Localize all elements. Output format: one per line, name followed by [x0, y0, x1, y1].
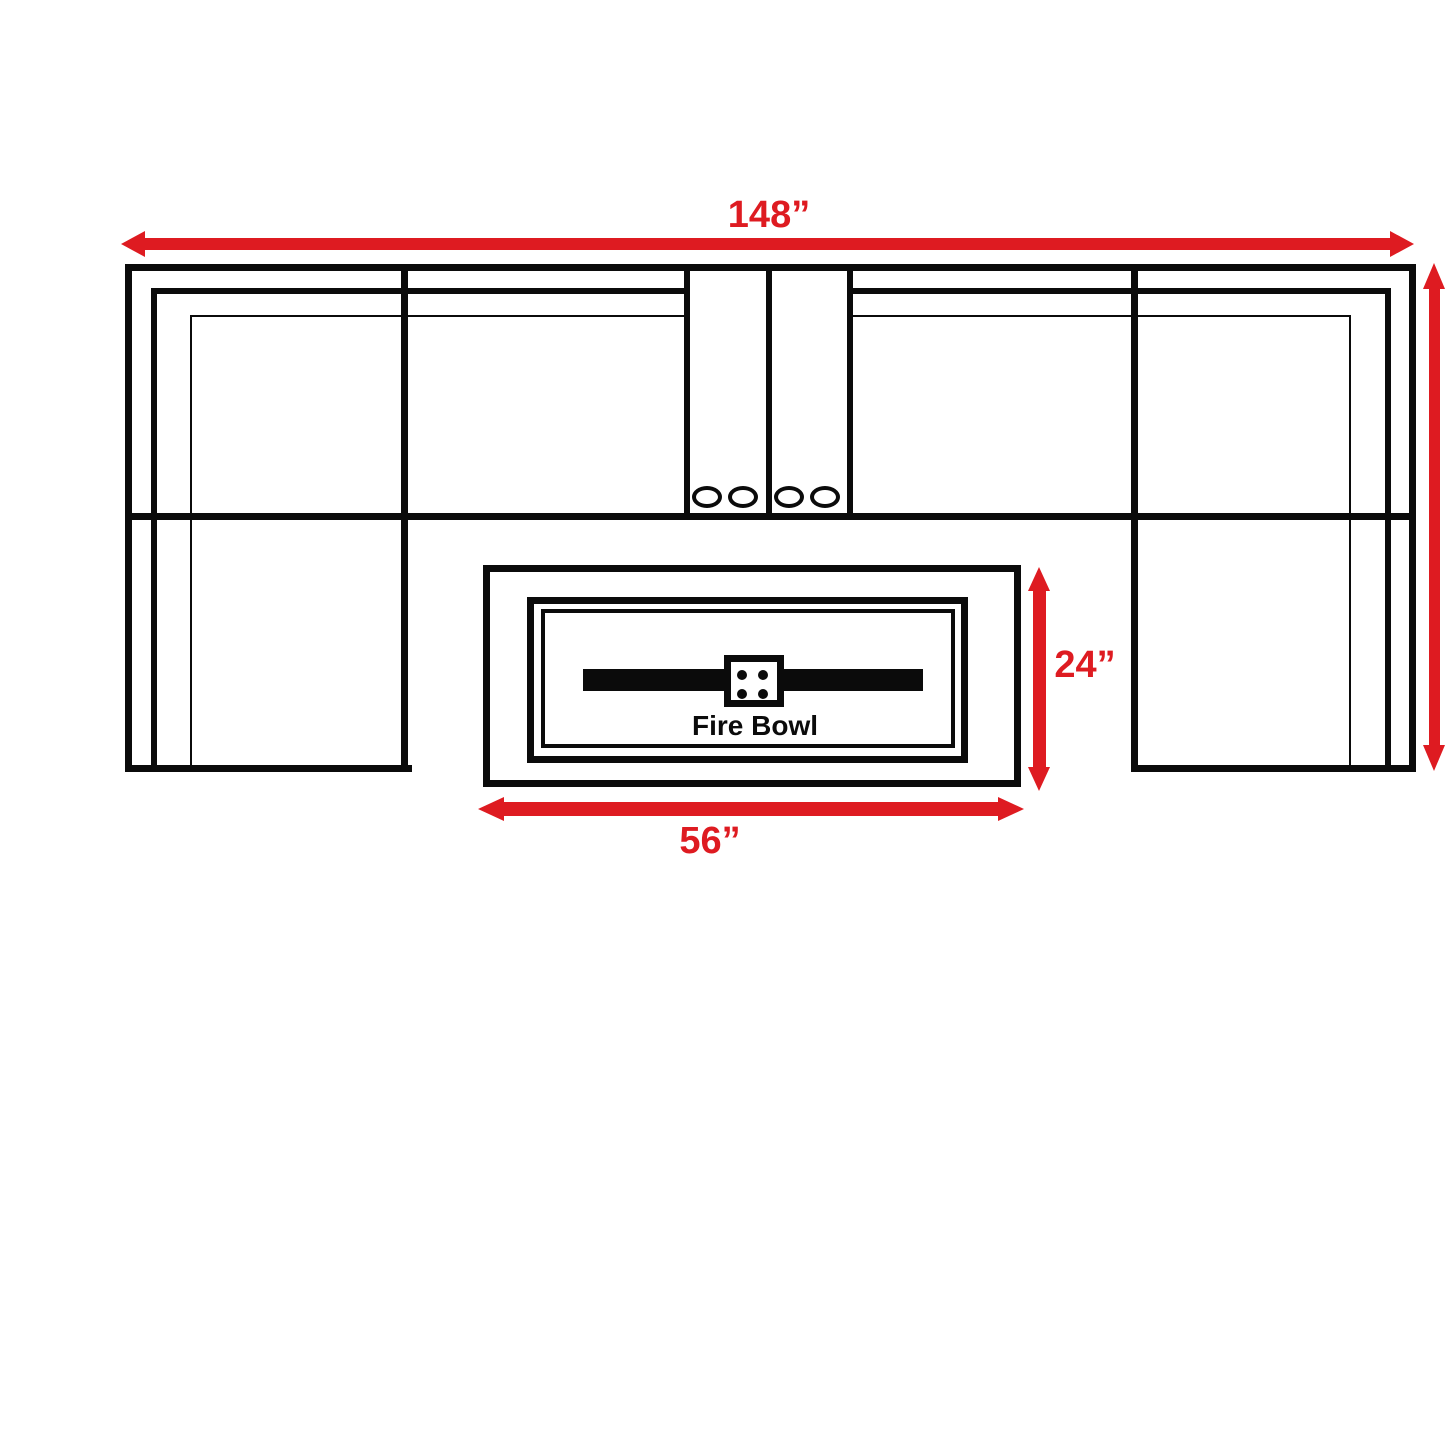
left-armrest-inner-line	[151, 288, 157, 772]
left-chaise-divider-line	[401, 264, 408, 772]
arrow-shaft	[1429, 289, 1440, 745]
arrowhead-right-icon	[1390, 231, 1414, 257]
sofa-outer-right-line	[1409, 264, 1416, 772]
console-right-line	[847, 264, 853, 520]
right-armrest-inner-line	[1385, 288, 1391, 772]
console-left-line	[684, 264, 690, 520]
igniter-dot-icon	[737, 689, 747, 699]
sofa-backrest-inner-line-left	[151, 288, 690, 294]
cup-holder-icon	[810, 486, 840, 508]
sofa-backrest-inner-line-right	[848, 288, 1391, 294]
arrow-shaft	[145, 238, 1390, 250]
igniter-dot-icon	[758, 670, 768, 680]
overall-depth-dimension-arrow-icon	[1423, 263, 1445, 771]
overall-width-dimension-arrow-icon	[121, 231, 1414, 257]
arrowhead-down-icon	[1028, 767, 1050, 791]
sofa-outer-left-line	[125, 264, 132, 772]
igniter-box-icon	[724, 655, 784, 707]
arrowhead-left-icon	[121, 231, 145, 257]
left-cushion-line	[190, 315, 192, 772]
right-chaise-divider-line	[1131, 264, 1138, 772]
dimension-label-firebowl-width: 56”	[630, 822, 790, 860]
arrow-shaft	[504, 802, 998, 816]
right-cushion-line	[1349, 315, 1351, 772]
cup-holder-icon	[692, 486, 722, 508]
arrowhead-down-icon	[1423, 745, 1445, 771]
firebowl-label: Fire Bowl	[655, 712, 855, 740]
arrowhead-up-icon	[1423, 263, 1445, 289]
cup-holder-icon	[774, 486, 804, 508]
igniter-dot-icon	[737, 670, 747, 680]
arrowhead-right-icon	[998, 797, 1024, 821]
sofa-cushion-line-left	[190, 315, 690, 317]
sofa-cushion-line-right	[848, 315, 1351, 317]
floorplan-canvas: 148” Fire Bowl	[0, 0, 1445, 1445]
arrowhead-up-icon	[1028, 567, 1050, 591]
firebowl-width-dimension-arrow-icon	[478, 797, 1024, 821]
console-middle-line	[766, 264, 772, 520]
dimension-label-firebowl-height: 24”	[1015, 646, 1155, 684]
igniter-dot-icon	[758, 689, 768, 699]
arrowhead-left-icon	[478, 797, 504, 821]
dimension-label-overall-width: 148”	[669, 196, 869, 234]
right-chaise-bottom-line	[1131, 765, 1416, 772]
cup-holder-icon	[728, 486, 758, 508]
left-chaise-bottom-line	[125, 765, 412, 772]
